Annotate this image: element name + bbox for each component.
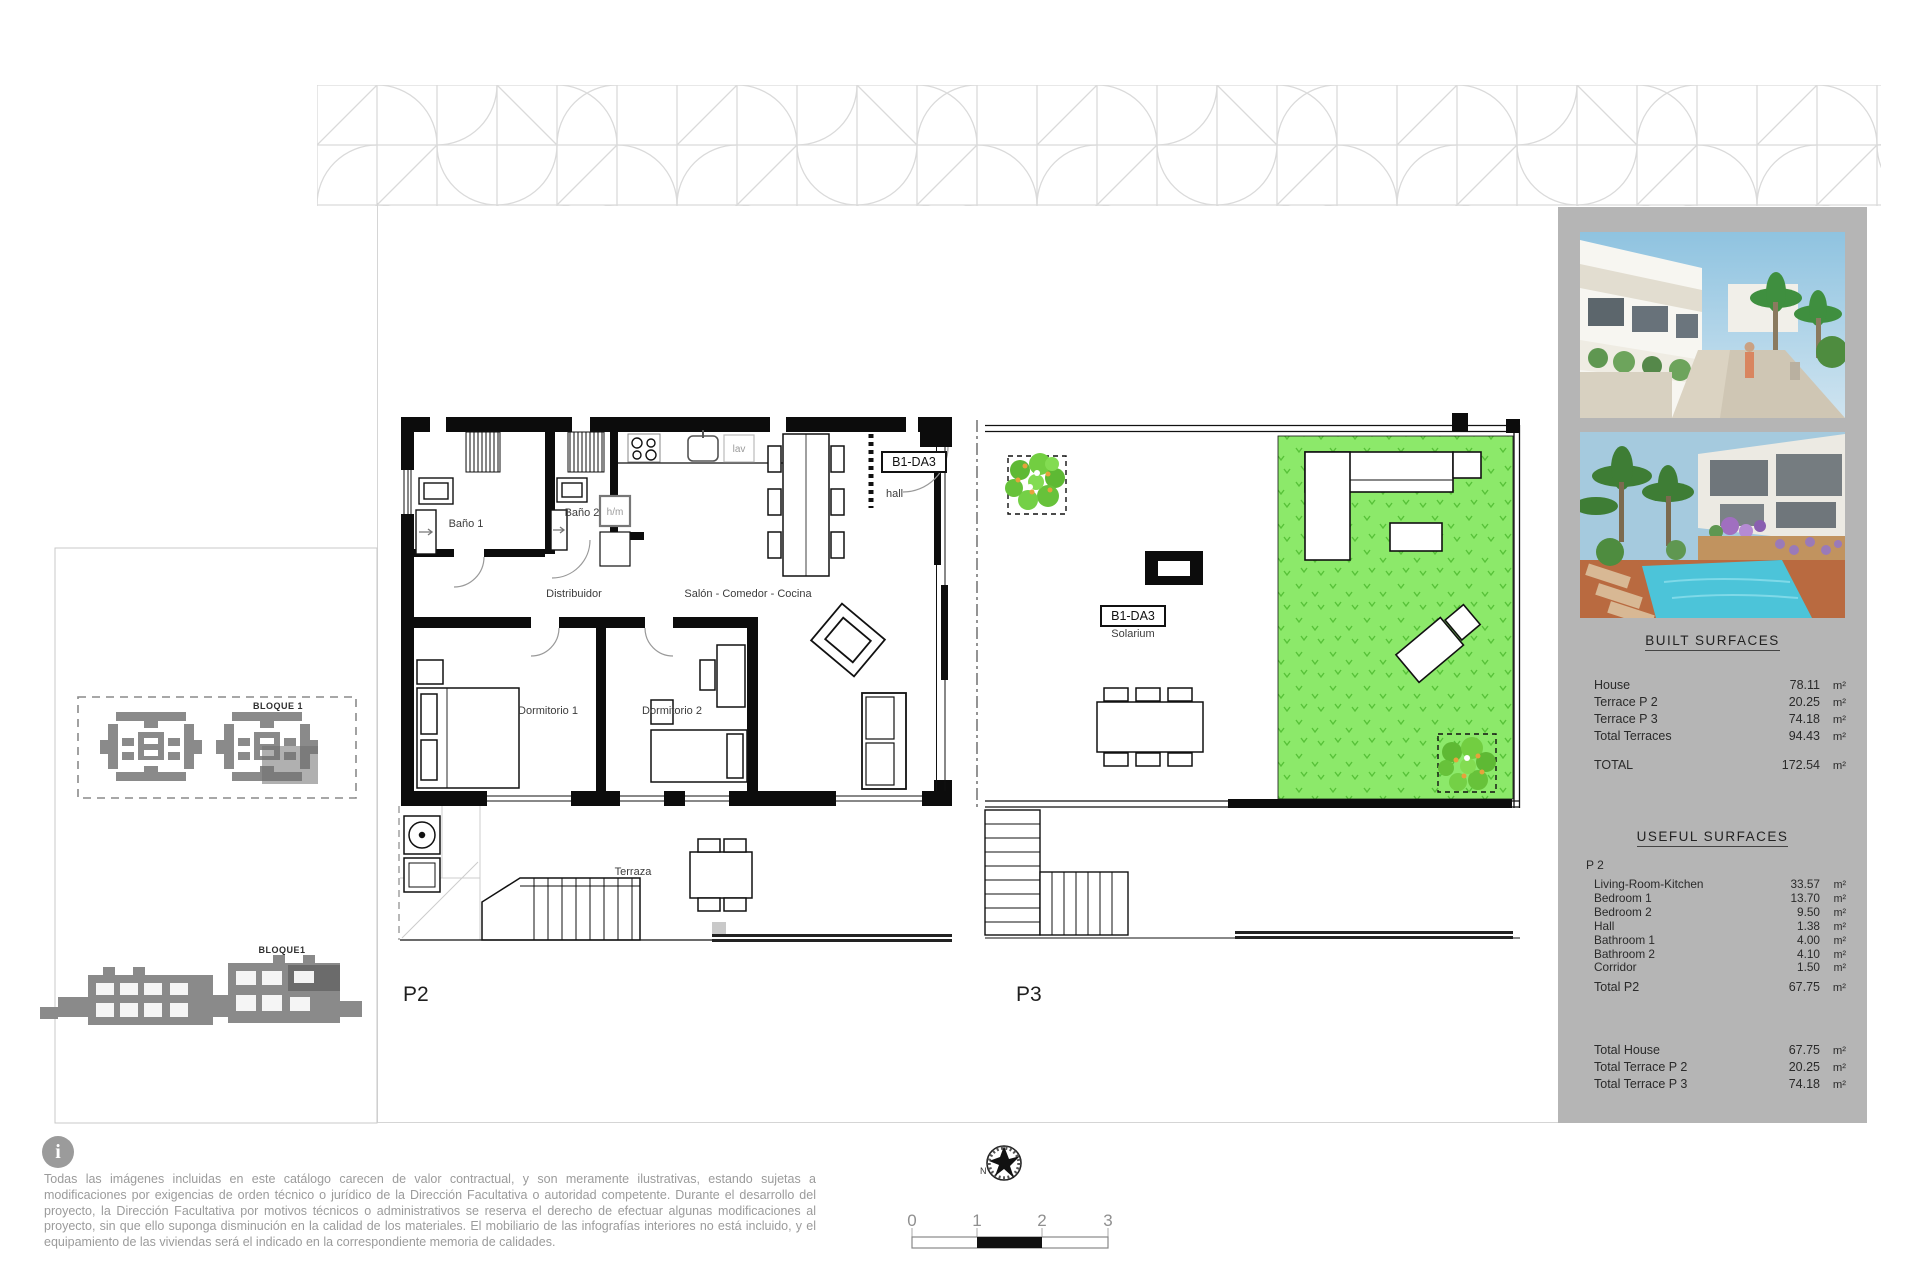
- terrace-fixture: [712, 922, 726, 936]
- useful-surfaces-title: USEFUL SURFACES: [1558, 829, 1867, 844]
- floor-plan-p2: lav h/m B1-DA3 hall: [399, 416, 952, 1006]
- built-surfaces-table: House78.11m² Terrace P 220.25m² Terrace …: [1594, 677, 1846, 745]
- row-unit: m²: [1820, 921, 1846, 934]
- row-label: Corridor: [1594, 961, 1770, 974]
- surfaces-sidebar: BUILT SURFACES House78.11m² Terrace P 22…: [1558, 207, 1867, 1123]
- shower-2: [568, 432, 604, 472]
- row-value: 33.57: [1770, 878, 1820, 891]
- terrace-stairs: [482, 878, 640, 940]
- highlighted-unit: [262, 746, 318, 784]
- door-arrows: [419, 527, 564, 535]
- disclaimer-text: Todas las imágenes incluidas en este cat…: [44, 1172, 816, 1251]
- built-total-row: TOTAL172.54m²: [1594, 757, 1846, 774]
- row-unit: m²: [1820, 893, 1846, 906]
- row-label: Bathroom 1: [1594, 934, 1770, 947]
- scale-bar: 0 1 2 3: [907, 1211, 1112, 1248]
- row-label: Bedroom 1: [1594, 892, 1770, 905]
- row-unit: m²: [1820, 695, 1846, 711]
- row-unit: m²: [1820, 678, 1846, 694]
- p2-plan-name: P2: [403, 983, 429, 1006]
- useful-total-row: Total P267.75m²: [1594, 979, 1846, 996]
- row-value: 9.50: [1770, 906, 1820, 919]
- floor-plan-p3: B1-DA3 Solarium: [977, 413, 1520, 1006]
- row-unit: m²: [1820, 907, 1846, 920]
- salon-label: Salón - Comedor - Cocina: [684, 588, 812, 600]
- row-value: 172.54: [1770, 757, 1820, 773]
- armchair: [811, 604, 885, 677]
- render-photo-pool: [1580, 432, 1845, 618]
- compass-rose: N: [980, 1146, 1021, 1180]
- p2-unit-code: B1-DA3: [892, 455, 936, 469]
- terrace-table: [690, 839, 752, 911]
- row-label: Total Terraces: [1594, 728, 1770, 744]
- tree-1: [1005, 453, 1065, 510]
- row-unit: m²: [1820, 729, 1846, 745]
- p2-terrace: Terraza: [399, 806, 952, 942]
- row-value: 1.50: [1770, 961, 1820, 974]
- dining-table-p2: [768, 434, 844, 576]
- north-label: N: [980, 1166, 987, 1176]
- scale-tick-3: 3: [1103, 1211, 1112, 1230]
- solarium-table: [1097, 688, 1203, 766]
- table-row: Bedroom 113.70m²: [1594, 892, 1846, 906]
- kitchen: lav h/m: [600, 430, 783, 566]
- lav-label: lav: [733, 444, 746, 455]
- table-row: Bathroom 14.00m²: [1594, 934, 1846, 948]
- bano2-label: Baño 2: [565, 507, 600, 519]
- render-photo-exterior: [1580, 232, 1845, 418]
- row-unit: m²: [1820, 949, 1846, 962]
- row-label: Bathroom 2: [1594, 948, 1770, 961]
- p3-stairs: [985, 810, 1128, 935]
- row-unit: m²: [1820, 1044, 1846, 1060]
- table-row: Terrace P 220.25m²: [1594, 694, 1846, 711]
- p3-plan-name: P3: [1016, 983, 1042, 1006]
- row-value: 67.75: [1770, 1043, 1820, 1059]
- row-value: 74.18: [1770, 1077, 1820, 1093]
- dormitorio2-label: Dormitorio 2: [642, 705, 702, 717]
- row-value: 20.25: [1770, 694, 1820, 710]
- distribuidor-label: Distribuidor: [546, 588, 602, 600]
- row-label: Total P2: [1594, 979, 1770, 995]
- row-label: House: [1594, 677, 1770, 693]
- bloque-elevation-label: BLOQUE1: [258, 945, 305, 955]
- row-unit: m²: [1820, 962, 1846, 975]
- table-row: Total Terraces94.43m²: [1594, 728, 1846, 745]
- bloque-label: BLOQUE 1: [253, 701, 303, 711]
- planter-box: [1145, 551, 1203, 585]
- built-surfaces-title: BUILT SURFACES: [1558, 633, 1867, 648]
- table-row: Bedroom 29.50m²: [1594, 906, 1846, 920]
- useful-group-label: P 2: [1586, 858, 1604, 872]
- row-value: 20.25: [1770, 1060, 1820, 1076]
- row-label: Terrace P 3: [1594, 711, 1770, 727]
- table-row: Total House67.75m²: [1594, 1043, 1846, 1060]
- dormitorio1-label: Dormitorio 1: [518, 705, 578, 717]
- row-label: TOTAL: [1594, 757, 1770, 773]
- coffee-table: [1390, 523, 1442, 551]
- tree-planter-1: [1005, 453, 1066, 514]
- terraza-label: Terraza: [615, 866, 653, 878]
- laundry-units: [404, 816, 440, 892]
- table-row: Corridor1.50m²: [1594, 961, 1846, 975]
- scale-tick-1: 1: [972, 1211, 981, 1230]
- row-label: Total House: [1594, 1043, 1770, 1059]
- scale-tick-0: 0: [907, 1211, 916, 1230]
- row-unit: m²: [1820, 980, 1846, 996]
- row-value: 78.11: [1770, 677, 1820, 693]
- row-unit: m²: [1820, 712, 1846, 728]
- table-row: House78.11m²: [1594, 677, 1846, 694]
- bedroom1-furniture: [417, 660, 519, 788]
- table-row: Hall1.38m²: [1594, 920, 1846, 934]
- row-label: Terrace P 2: [1594, 694, 1770, 710]
- summary-table: Total House67.75m² Total Terrace P 220.2…: [1594, 1043, 1846, 1093]
- scale-bar-filled-segment: [977, 1237, 1042, 1248]
- row-value: 4.00: [1770, 934, 1820, 947]
- table-row: Total Terrace P 220.25m²: [1594, 1060, 1846, 1077]
- row-label: Bedroom 2: [1594, 906, 1770, 919]
- hall-label: hall: [886, 488, 903, 500]
- bano1-label: Baño 1: [449, 518, 484, 530]
- table-row: Total Terrace P 374.18m²: [1594, 1077, 1846, 1094]
- row-unit: m²: [1820, 1078, 1846, 1094]
- sofa: [862, 693, 906, 789]
- row-value: 13.70: [1770, 892, 1820, 905]
- site-plan-panel: BLOQUE 1: [40, 548, 377, 1123]
- scale-tick-2: 2: [1037, 1211, 1046, 1230]
- row-value: 94.43: [1770, 728, 1820, 744]
- row-value: 67.75: [1770, 979, 1820, 995]
- row-unit: m²: [1820, 935, 1846, 948]
- info-icon: i: [42, 1136, 74, 1168]
- table-row: Terrace P 374.18m²: [1594, 711, 1846, 728]
- row-label: Hall: [1594, 920, 1770, 933]
- shower-1: [466, 432, 500, 472]
- p3-unit-code: B1-DA3: [1111, 609, 1155, 623]
- table-row: Bathroom 24.10m²: [1594, 948, 1846, 962]
- row-value: 4.10: [1770, 948, 1820, 961]
- kitchen-sink: [688, 436, 718, 461]
- row-unit: m²: [1820, 1061, 1846, 1077]
- brochure-page: BLOQUE 1: [0, 0, 1920, 1280]
- row-label: Total Terrace P 3: [1594, 1077, 1770, 1093]
- bathroom-fixtures: [416, 478, 587, 554]
- useful-surfaces-table: Living-Room-Kitchen33.57m² Bedroom 113.7…: [1594, 878, 1846, 975]
- table-row: Living-Room-Kitchen33.57m²: [1594, 878, 1846, 892]
- row-label: Living-Room-Kitchen: [1594, 878, 1770, 891]
- solarium-label: Solarium: [1111, 628, 1154, 640]
- row-unit: m²: [1820, 879, 1846, 892]
- row-value: 1.38: [1770, 920, 1820, 933]
- hm-label: h/m: [607, 507, 624, 518]
- site-plan-box: [55, 548, 377, 1123]
- row-unit: m²: [1820, 758, 1846, 774]
- row-label: Total Terrace P 2: [1594, 1060, 1770, 1076]
- row-value: 74.18: [1770, 711, 1820, 727]
